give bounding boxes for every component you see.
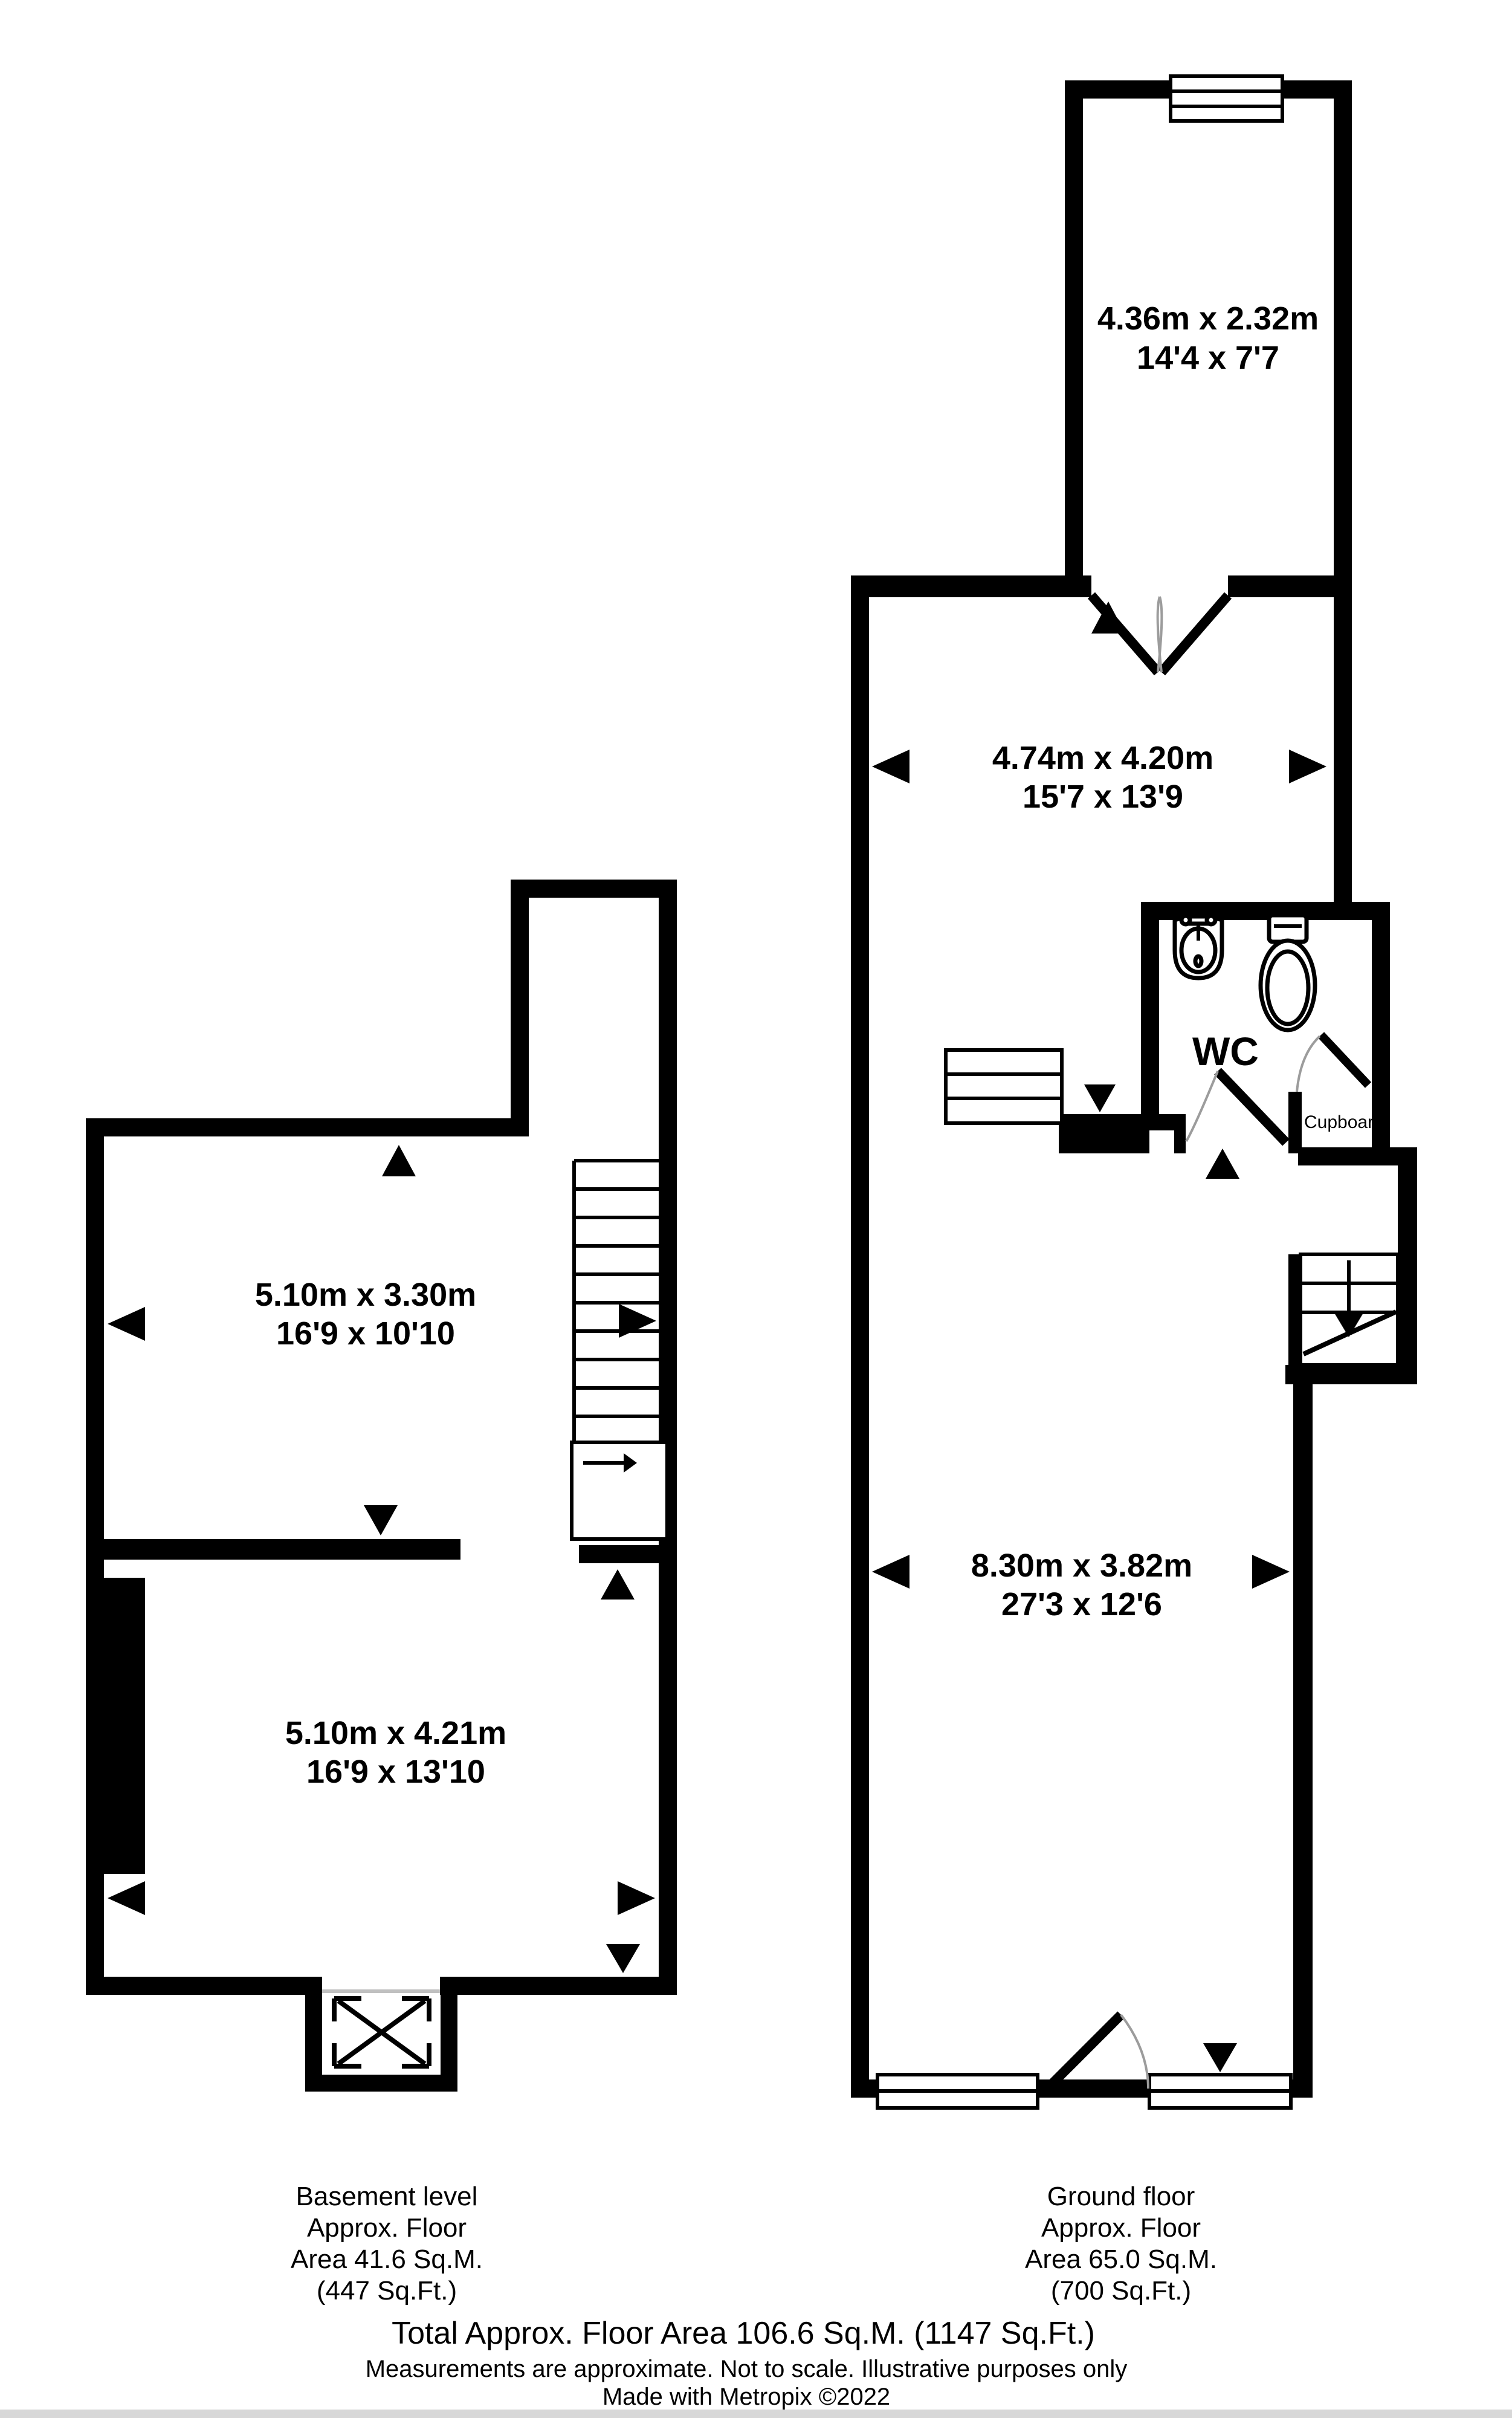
floorplan-page: 5.10m x 3.30m 16'9 x 10'10 5.10m x 4.21m… [0,0,1512,2418]
room-dims-imperial: 27'3 x 12'6 [1001,1586,1162,1622]
caption-line: Area 65.0 Sq.M. [1025,2245,1217,2274]
cupboard-partition [1288,1092,1302,1153]
room-dims-imperial: 16'9 x 10'10 [276,1315,455,1352]
chimney-breast [91,1578,145,1874]
room-dims-metric: 4.36m x 2.32m [1097,300,1319,337]
credit-text: Made with Metropix ©2022 [603,2384,890,2410]
window-icon [1149,2075,1291,2108]
stairs-down-icon [1300,1254,1398,1365]
room-dims-imperial: 15'7 x 13'9 [1023,779,1183,815]
window-icon [1171,76,1282,121]
caption-line: Area 41.6 Sq.M. [291,2245,483,2274]
caption-line: Approx. Floor [307,2213,467,2243]
total-floor-area: Total Approx. Floor Area 106.6 Sq.M. (11… [392,2316,1095,2351]
disclaimer-text: Measurements are approximate. Not to sca… [366,2356,1128,2382]
hall-stairs-icon [946,1050,1062,1123]
wc-room-label: WC [1192,1029,1259,1074]
room-dims-imperial: 16'9 x 13'10 [306,1754,485,1790]
caption-line: (447 Sq.Ft.) [317,2276,457,2306]
caption-line: Ground floor [1047,2182,1195,2211]
stair-landing [572,1442,667,1539]
page-background [0,0,1512,2418]
footer-bar [0,2410,1512,2418]
room-dims-metric: 4.74m x 4.20m [992,740,1213,776]
toilet-icon [1261,915,1315,1030]
window-icon [877,2075,1038,2108]
cupboard-room-label: Cupboard [1304,1112,1384,1132]
caption-line: Basement level [296,2182,478,2211]
sink-icon [1175,916,1222,978]
basement-partition-wall [86,1539,460,1560]
room-dims-metric: 5.10m x 4.21m [285,1715,506,1751]
room-dims-imperial: 14'4 x 7'7 [1137,340,1279,376]
room-dims-metric: 8.30m x 3.82m [971,1548,1192,1584]
floorplan-canvas: 5.10m x 3.30m 16'9 x 10'10 5.10m x 4.21m… [0,0,1512,2418]
caption-line: (700 Sq.Ft.) [1051,2276,1191,2306]
room-dims-metric: 5.10m x 3.30m [255,1277,476,1313]
caption-line: Approx. Floor [1041,2213,1201,2243]
